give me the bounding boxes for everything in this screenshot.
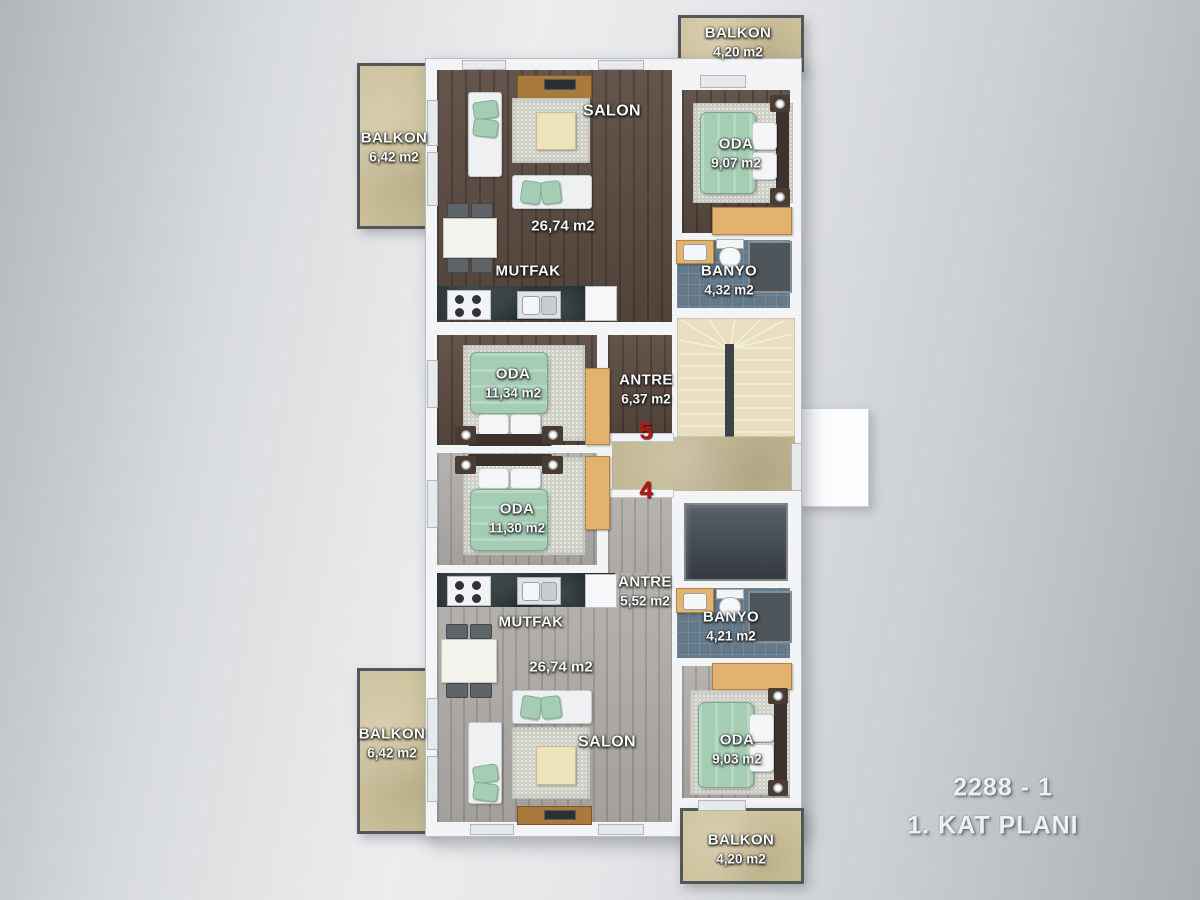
chair [470,683,492,698]
room-label-salon-upper-area: 26,74 m2 [531,216,594,236]
chair [446,624,468,639]
room-label-balkon-bottom-right: BALKON4,20 m2 [708,830,775,867]
sink-basin [522,296,540,315]
nightstand [770,95,790,112]
dining-table [441,639,497,683]
sofa-cushion [519,180,542,206]
lamp-icon [548,460,558,470]
window [427,756,438,802]
lamp-icon [773,691,783,701]
burner-icon [455,295,464,304]
room-label-oda-lower-right: ODA9,03 m2 [712,730,762,767]
sink-basin [541,582,557,601]
bed-pillow [510,468,541,489]
window [427,480,438,528]
room-label-oda-lower-mid: ODA11,30 m2 [489,499,545,536]
sink-basin [522,582,540,601]
balcony-door-upper-right [700,75,746,88]
elevator-shaft [684,503,788,581]
fridge [585,286,617,321]
lamp-icon [548,430,558,440]
bed-headboard [468,434,552,446]
nightstand [542,426,563,444]
lamp-icon [775,192,785,202]
sofa-cushion [472,118,499,139]
window [470,824,514,835]
lamp-icon [773,783,783,793]
kitchen-sink [517,291,561,319]
stove [447,576,491,606]
burner-icon [455,581,464,590]
chair [446,683,468,698]
sink-basin [541,296,557,315]
room-label-mutfak-lower: MUTFAK [499,612,564,632]
room-label-oda-upper-mid: ODA11,34 m2 [485,364,541,401]
room-label-balkon-top-right: BALKON4,20 m2 [705,23,772,60]
window [462,60,506,70]
window [427,100,438,146]
bed-pillow [478,468,509,489]
apartment-number-upper: 5 [639,418,652,446]
tv [544,810,576,820]
room-label-oda-upper-right: ODA9,07 m2 [711,134,761,171]
floor-plan-canvas: BALKON6,42 m2 BALKON4,20 m2 SALON 26,74 … [0,0,1200,900]
bed-pillow [478,414,509,435]
tv-console [517,75,592,99]
bathroom-vanity [676,240,714,264]
wardrobe [585,456,610,530]
room-label-salon-upper: SALON [583,102,641,123]
plan-code: 2288 - 1 [953,774,1053,803]
sofa-cushion [472,782,499,803]
window [598,824,644,835]
dresser [712,663,792,690]
apartment-number-lower: 4 [639,477,652,505]
tv-console [517,806,592,825]
room-label-banyo-upper: BANYO4,32 m2 [701,261,757,298]
chair [447,258,469,273]
lamp-icon [461,460,471,470]
bed-headboard [468,454,552,466]
nightstand [455,426,476,444]
sofa-cushion [540,695,563,720]
room-label-banyo-lower: BANYO4,21 m2 [703,607,759,644]
bed-pillow [510,414,541,435]
balcony-door-lower-left [427,698,438,750]
lamp-icon [461,430,471,440]
chair [447,203,469,218]
bed-headboard [776,108,789,198]
kitchen-sink [517,577,561,605]
sofa-cushion [519,695,542,721]
fridge [585,574,617,608]
stove [447,290,491,320]
tv [544,79,576,90]
sofa [468,92,502,177]
balcony-door-upper-left [427,152,438,206]
window [427,360,438,408]
bed-headboard [774,700,787,788]
window [598,60,644,70]
chair [470,624,492,639]
coffee-table [536,746,576,785]
room-label-antre-upper: ANTRE6,37 m2 [619,370,673,407]
sofa [512,175,592,209]
nightstand [768,688,788,704]
room-label-balkon-top-left: BALKON6,42 m2 [361,128,428,165]
nightstand [455,456,476,474]
dresser [712,207,792,235]
chair [471,258,493,273]
dining-table [443,218,497,258]
wardrobe [585,368,610,445]
nightstand [768,780,788,796]
coffee-table [536,112,576,150]
room-label-salon-lower: SALON [578,733,636,754]
entry-landing [799,408,869,507]
room-label-antre-lower: ANTRE5,52 m2 [618,572,672,609]
sink-basin [683,244,707,261]
nightstand [770,188,790,205]
room-label-balkon-bottom-left: BALKON6,42 m2 [359,724,426,761]
plan-floor-title: 1. KAT PLANI [907,812,1078,841]
sofa [468,722,502,804]
chair [471,203,493,218]
balcony-door-lower-right [698,800,746,811]
room-label-salon-lower-area: 26,74 m2 [529,657,592,677]
room-label-mutfak-upper: MUTFAK [496,261,561,281]
staircase [677,318,795,437]
building-entry-opening [791,443,802,491]
lamp-icon [775,99,785,109]
sofa [512,690,592,724]
nightstand [542,456,563,474]
sofa-cushion [540,180,562,205]
